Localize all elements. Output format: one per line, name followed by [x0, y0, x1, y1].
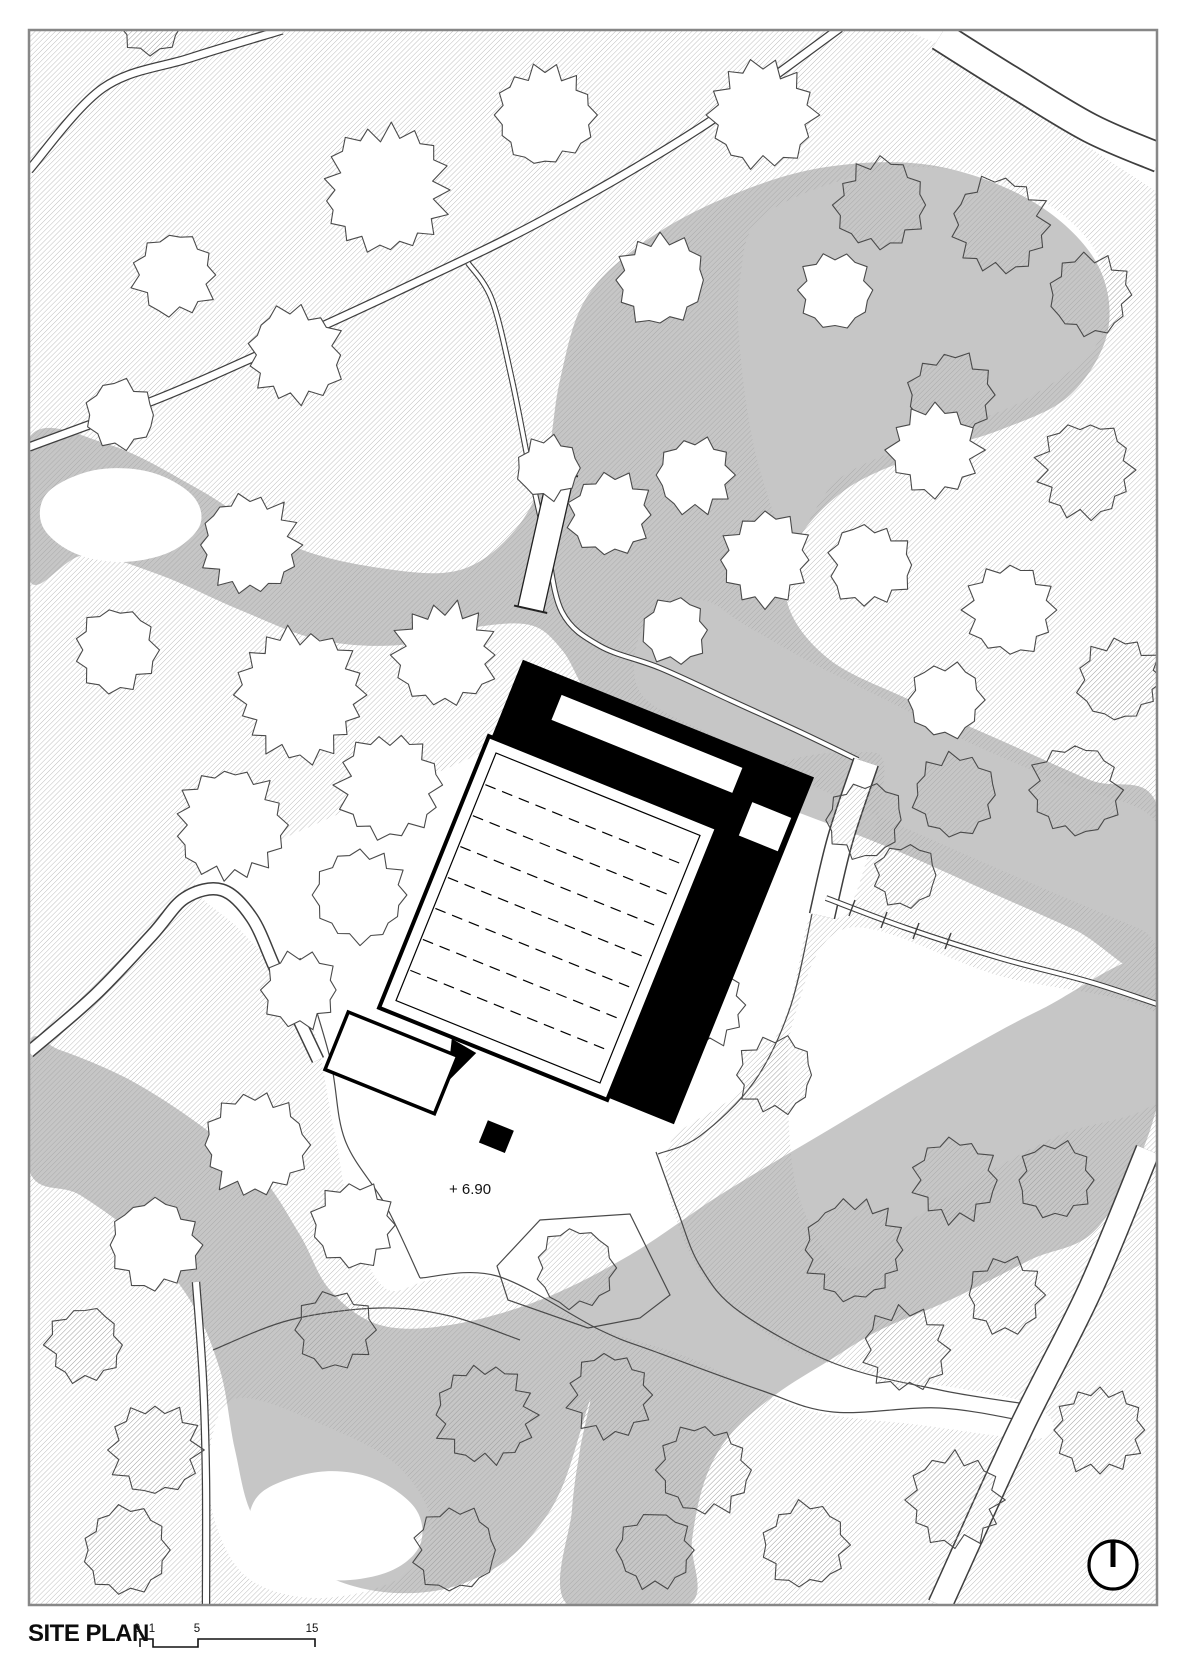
scale-label-0: 0 [134, 1623, 140, 1635]
site-plan-canvas: + 6.90 SITE PLAN 0 1 5 15 [0, 0, 1200, 1663]
site-plan-sheet: + 6.90 SITE PLAN 0 1 5 15 [0, 0, 1200, 1663]
north-arrow-icon [1089, 1541, 1137, 1589]
site-plan-drawing [20, 0, 1173, 1615]
level-annotation: + 6.90 [449, 1181, 491, 1198]
scale-label-15: 15 [306, 1623, 319, 1635]
plan-title: SITE PLAN [28, 1620, 149, 1647]
scale-label-5: 5 [194, 1623, 200, 1635]
scale-label-1: 1 [149, 1623, 155, 1635]
